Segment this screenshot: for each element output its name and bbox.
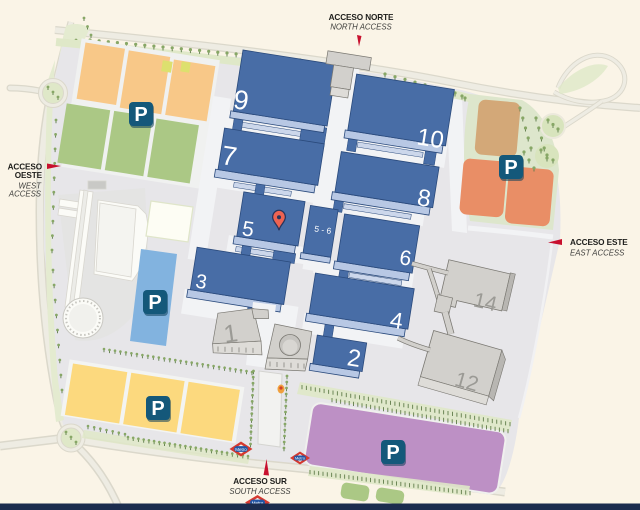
svg-text:10: 10 bbox=[415, 123, 446, 154]
svg-text:ACCESS: ACCESS bbox=[8, 190, 42, 199]
svg-text:P: P bbox=[504, 157, 517, 179]
svg-text:Metro: Metro bbox=[295, 456, 305, 461]
svg-text:P: P bbox=[386, 442, 399, 464]
svg-text:ACCESO SUR: ACCESO SUR bbox=[233, 477, 287, 486]
svg-text:SOUTH ACCESS: SOUTH ACCESS bbox=[229, 487, 291, 496]
svg-text:OESTE: OESTE bbox=[15, 171, 43, 180]
svg-text:NORTH ACCESS: NORTH ACCESS bbox=[330, 23, 392, 32]
svg-text:P: P bbox=[148, 292, 161, 314]
svg-text:P: P bbox=[134, 104, 147, 126]
svg-text:P: P bbox=[151, 398, 164, 420]
svg-text:ACCESO ESTE: ACCESO ESTE bbox=[570, 238, 628, 247]
svg-text:ACCESO NORTE: ACCESO NORTE bbox=[329, 13, 394, 22]
svg-text:EAST ACCESS: EAST ACCESS bbox=[570, 249, 625, 258]
svg-text:Metro: Metro bbox=[235, 447, 247, 452]
